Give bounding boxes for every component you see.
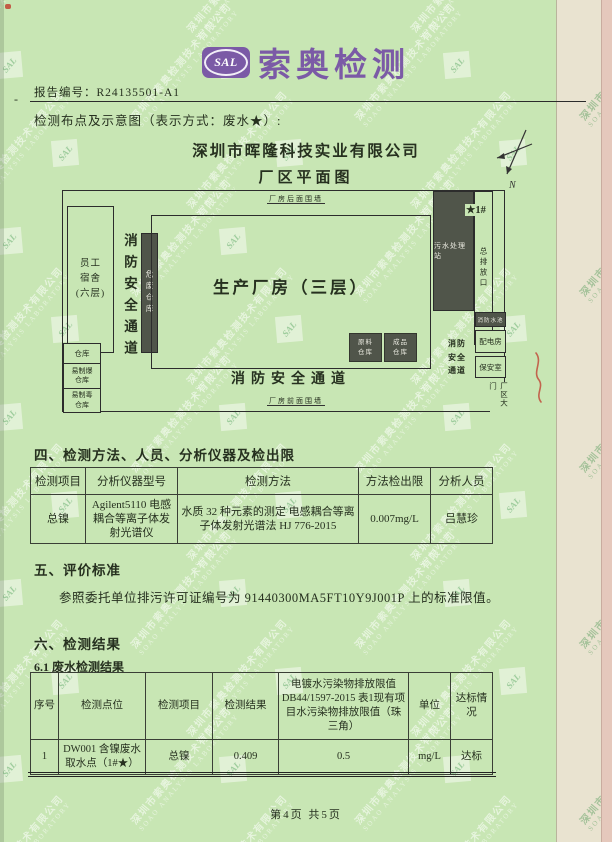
production-building-label: 生产厂房（三层）	[152, 274, 430, 298]
cell-compliance: 达标	[451, 740, 493, 775]
fire-corridor-right: 消防 安全 通道	[444, 337, 470, 378]
col-header: 检测点位	[59, 673, 146, 740]
dorm-building: 员工 宿舍 (六层)	[67, 206, 114, 353]
method-table: 检测项目 分析仪器型号 检测方法 方法检出限 分析人员 总镍 Agilent51…	[30, 467, 493, 544]
report-number: 报告编号：R24135501-A1	[34, 84, 180, 100]
col-header: 检测项目	[146, 673, 213, 740]
col-header: 检测结果	[213, 673, 279, 740]
logo-name: 索奥检测	[258, 38, 410, 86]
result-table-row: 1 DW001 含镍废水取水点（1#★） 总镍 0.409 0.5 mg/L 达…	[31, 740, 493, 775]
wall-label-bottom: 厂房前面围墙	[213, 396, 379, 406]
col-header: 检测方法	[178, 468, 359, 495]
col-header: 达标情况	[451, 673, 493, 740]
sal-logo-text: SAL	[214, 55, 238, 70]
raw-material-warehouse: 原料 仓库	[349, 333, 382, 362]
production-building: 生产厂房（三层） 原料 仓库 成品 仓库	[151, 215, 431, 369]
method-table-row: 总镍 Agilent5110 电感耦合等离子体发射光谱仪 水质 32 种元素的测…	[31, 495, 493, 544]
cell-unit: mg/L	[409, 740, 451, 775]
col-header: 方法检出限	[359, 468, 431, 495]
wall-label-top: 厂房后面围墙	[213, 194, 379, 204]
col-header: 分析仪器型号	[86, 468, 178, 495]
compass-n-label: N	[508, 180, 517, 191]
security-room: 保安室	[475, 356, 506, 378]
cell-detection-limit: 0.007mg/L	[359, 495, 431, 544]
cell-item: 总镍	[31, 495, 86, 544]
col-header: 分析人员	[431, 468, 493, 495]
factory-gate: 厂区大门	[490, 382, 507, 413]
power-distribution-room: 配电房	[475, 330, 506, 353]
cell-item: 总镍	[146, 740, 213, 775]
cell-limit: 0.5	[279, 740, 409, 775]
col-header: 电镀水污染物排放限值 DB44/1597-2015 表1现有项目水污染物排放限值…	[279, 673, 409, 740]
result-table: 序号 检测点位 检测项目 检测结果 电镀水污染物排放限值 DB44/1597-2…	[30, 672, 493, 775]
col-header: 检测项目	[31, 468, 86, 495]
explosive-precursor-warehouse: 易制爆 仓库	[63, 363, 101, 389]
table-end-rule	[28, 772, 496, 777]
method-table-header: 检测项目 分析仪器型号 检测方法 方法检出限 分析人员	[31, 468, 493, 495]
sal-logo-icon: SAL	[202, 47, 250, 78]
layout-intro-line: 检测布点及示意图（表示方式：废水★）:	[34, 110, 281, 129]
cell-analyst: 吕慧珍	[431, 495, 493, 544]
north-arrow-icon: N	[492, 128, 536, 196]
page-footer: 第4页 共5页	[0, 806, 612, 822]
scanned-report-page: 深圳市索奥检测技术有限公司SOAO ANALYSIS LABORATORYSAL…	[0, 0, 612, 842]
sal-logo-oval: SAL	[204, 49, 248, 76]
section4-title: 四、检测方法、人员、分析仪器及检出限	[34, 444, 295, 464]
warehouse-box: 仓库	[63, 343, 101, 364]
inner-warehouses: 原料 仓库 成品 仓库	[349, 333, 417, 362]
factory-plan-diagram: 厂房后面围墙 员工 宿舍 (六层) 消防安全通道 危废仓库 生产厂房（三层） 原…	[62, 190, 505, 412]
section5-body: 参照委托单位排污许可证编号为 91440300MA5FT10Y9J001P 上的…	[34, 587, 554, 606]
cell-index: 1	[31, 740, 59, 775]
toxic-precursor-warehouse: 易制毒 仓库	[63, 388, 101, 413]
section5-title: 五、评价标准	[34, 559, 121, 579]
cell-result: 0.409	[213, 740, 279, 775]
result-table-header: 序号 检测点位 检测项目 检测结果 电镀水污染物排放限值 DB44/1597-2…	[31, 673, 493, 740]
header-rule	[30, 101, 586, 102]
margin-dash: -	[14, 92, 18, 107]
fire-corridor-left: 消防安全通道	[119, 233, 139, 375]
sampling-point-star: ★1#	[465, 204, 487, 216]
cell-sampling-point: DW001 含镍废水取水点（1#★）	[59, 740, 146, 775]
col-header: 序号	[31, 673, 59, 740]
company-logo: SAL 索奥检测	[0, 38, 612, 86]
finished-goods-warehouse: 成品 仓库	[384, 333, 417, 362]
fire-water-pool: 消防水池	[475, 312, 506, 327]
cell-instrument: Agilent5110 电感耦合等离子体发射光谱仪	[86, 495, 178, 544]
fire-corridor-bottom: 消防安全通道	[151, 368, 431, 388]
page-content: SAL 索奥检测 报告编号：R24135501-A1 - 检测布点及示意图（表示…	[0, 0, 612, 842]
col-header: 单位	[409, 673, 451, 740]
section6-title: 六、检测结果	[34, 633, 121, 653]
cell-method: 水质 32 种元素的测定 电感耦合等离子体发射光谱法 HJ 776-2015	[178, 495, 359, 544]
